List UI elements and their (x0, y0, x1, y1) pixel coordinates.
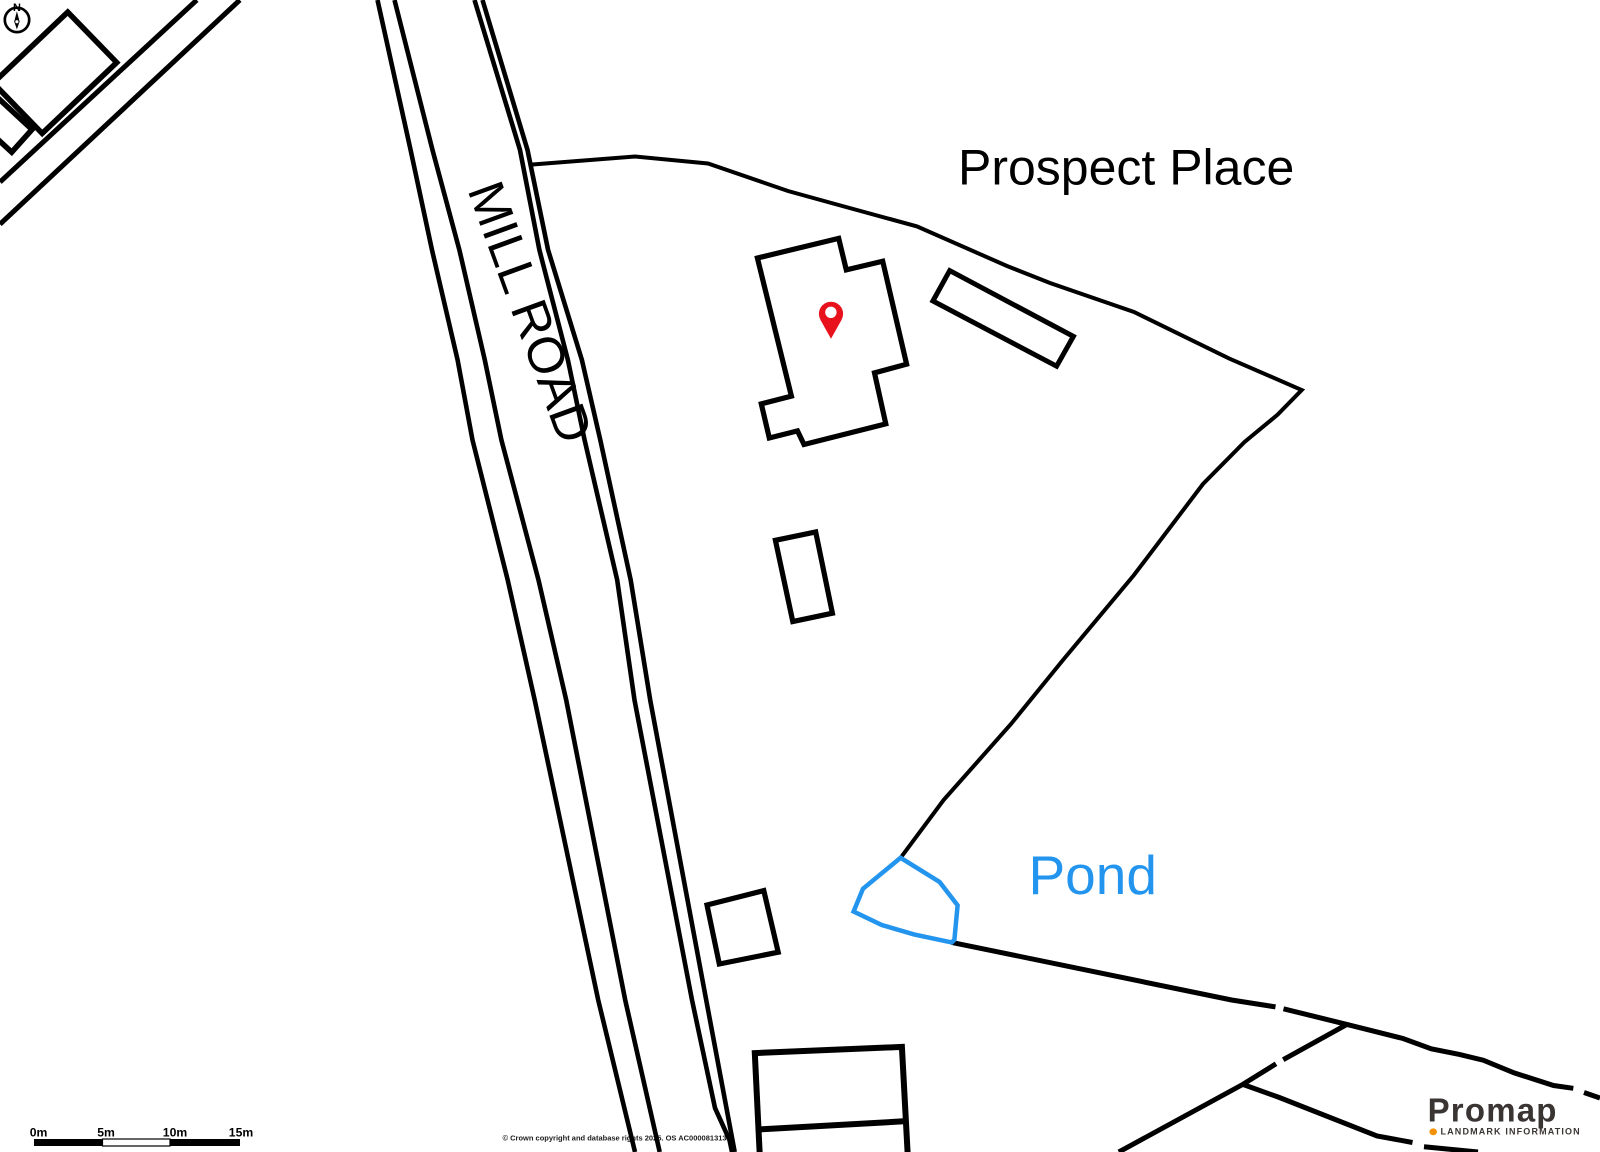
svg-text:LANDMARK INFORMATION: LANDMARK INFORMATION (1441, 1127, 1581, 1137)
svg-text:15m: 15m (229, 1125, 254, 1139)
svg-text:Pond: Pond (1029, 844, 1157, 906)
svg-text:10m: 10m (163, 1125, 188, 1139)
svg-text:© Crown copyright and database: © Crown copyright and database rights 20… (503, 1133, 732, 1142)
svg-text:5m: 5m (97, 1125, 115, 1139)
svg-text:Promap: Promap (1428, 1092, 1558, 1129)
svg-text:Prospect Place: Prospect Place (958, 140, 1294, 196)
svg-text:0m: 0m (30, 1125, 48, 1139)
